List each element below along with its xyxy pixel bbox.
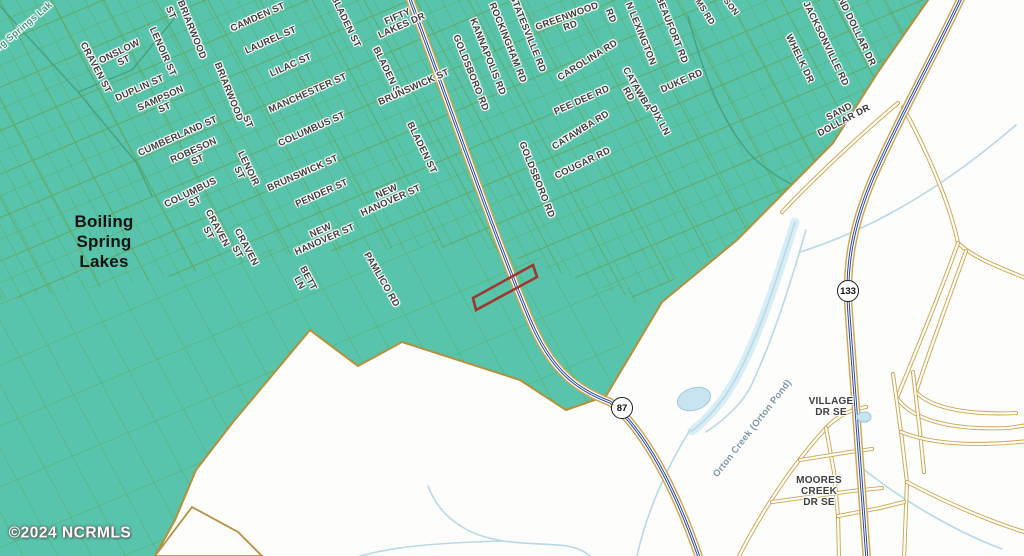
- pond: [857, 412, 871, 422]
- highway-87-shield: 87: [611, 397, 633, 419]
- map-canvas[interactable]: Boiling Springs LakCRAVEN STONSLOW STLEN…: [0, 0, 1024, 556]
- map-svg: [0, 0, 1024, 556]
- highway-133-shield: 133: [837, 280, 859, 302]
